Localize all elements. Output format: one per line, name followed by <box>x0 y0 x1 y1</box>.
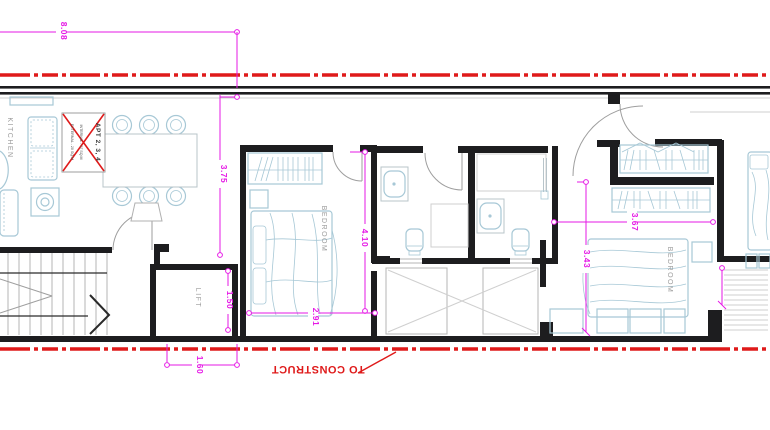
apt-number-label: APT 2, 3, 4 <box>94 123 101 161</box>
dim-label: 1.60 <box>195 356 205 375</box>
to-construct-note: TO CONSTRUCT <box>271 352 396 375</box>
dim-label: 3.67 <box>630 213 640 232</box>
bed <box>748 152 770 250</box>
dim-bedroom1-depth: 4.10 <box>350 150 370 314</box>
dining-set <box>103 116 197 206</box>
shower-tray <box>477 154 546 191</box>
bench <box>664 309 685 333</box>
kitchen-label: KITCHEN <box>6 117 13 158</box>
dimensions: 8.08 3.75 4.10 2.91 <box>0 17 726 379</box>
dim-label: 3.43 <box>582 250 592 269</box>
note-leader-line <box>358 352 396 373</box>
to-construct-label: TO CONSTRUCT <box>271 363 364 375</box>
chaise <box>0 190 18 236</box>
bedroom2-furniture <box>550 143 712 333</box>
reference-lines <box>0 98 770 112</box>
bench <box>630 309 661 333</box>
apt-label-box: APT 2, 3, 4 INTERNAL - 97 SQ.M EXTERNAL … <box>62 113 105 172</box>
apt-internal-area-label: INTERNAL - 97 SQ.M <box>79 124 83 159</box>
dim-living-depth: 3.75 <box>216 95 239 258</box>
bedroom2-label: BEDROOM <box>666 247 673 294</box>
staircase <box>0 253 109 335</box>
wardrobe <box>612 188 710 212</box>
toilet <box>406 229 423 255</box>
dim-bedroom1-width: 2.91 <box>247 303 378 331</box>
dim-plot-width: 8.08 <box>0 17 239 88</box>
dim-label: 3.75 <box>219 165 229 184</box>
bathroom2 <box>477 154 548 255</box>
dim-label: 2.91 <box>311 308 321 327</box>
stair-direction-arrow <box>90 295 109 334</box>
bedroom3-partial <box>746 152 770 268</box>
apt-external-area-label: EXTERNAL - 20 SQ.M <box>70 124 74 160</box>
sofa <box>28 117 57 180</box>
walls <box>0 86 770 342</box>
wardrobe <box>620 143 708 173</box>
nightstand <box>250 190 268 208</box>
bathroom1 <box>381 167 468 255</box>
side-unit <box>31 188 59 216</box>
lift-label: LIFT <box>194 288 201 308</box>
dim-label: 1.50 <box>225 291 235 310</box>
wardrobe <box>248 153 322 184</box>
dining-table <box>103 134 197 187</box>
balcony-hatch <box>724 270 768 330</box>
bench <box>550 309 583 333</box>
corridor-shaft-boxes <box>386 268 538 334</box>
nightstand <box>692 242 712 262</box>
bench <box>597 309 628 333</box>
dim-balcony-partial <box>718 266 726 309</box>
bedroom1-label: BEDROOM <box>320 206 327 253</box>
dim-label: 8.08 <box>59 22 69 41</box>
bathrooms <box>381 154 548 255</box>
lounge-chair <box>131 203 162 221</box>
floor-plan-canvas: APT 2, 3, 4 INTERNAL - 97 SQ.M EXTERNAL … <box>0 0 770 430</box>
dim-label: 4.10 <box>360 229 370 248</box>
toilet <box>512 229 529 255</box>
shower-tray <box>431 204 468 247</box>
